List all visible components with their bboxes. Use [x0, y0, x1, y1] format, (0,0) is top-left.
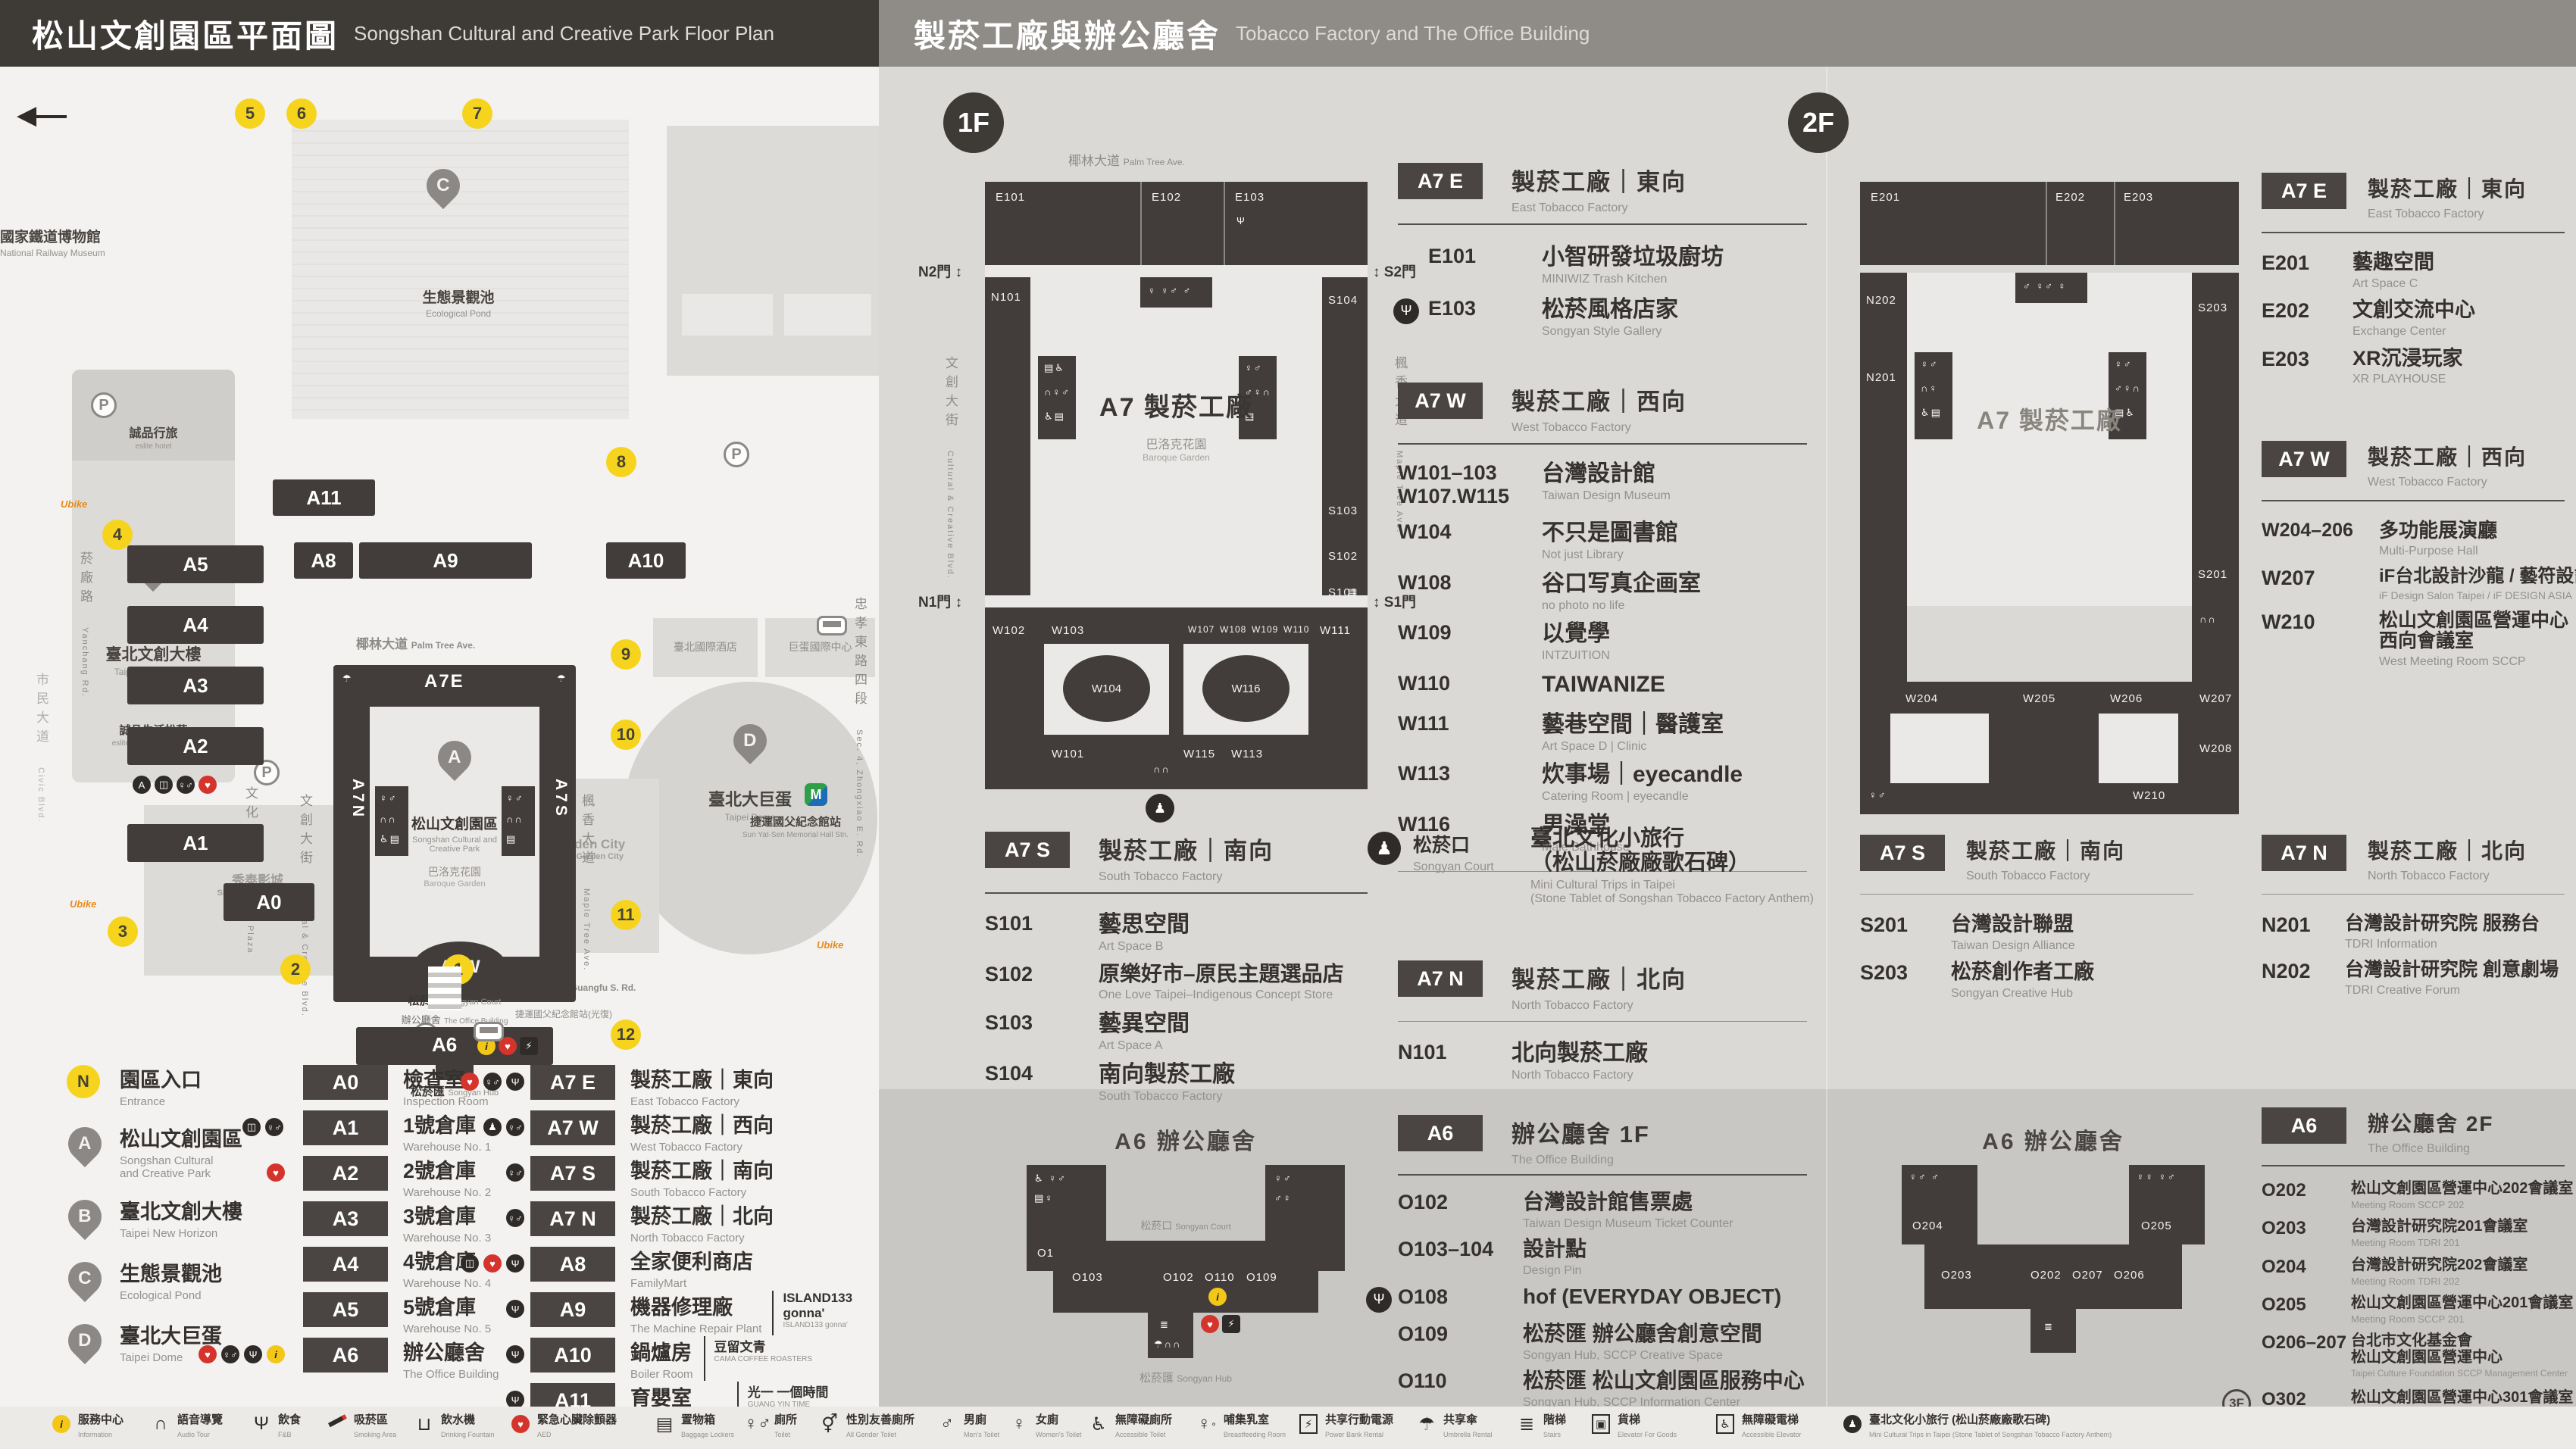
- room-name-en: Songyan Style Gallery: [1542, 325, 1678, 339]
- court-title-en: Songyan Court: [1413, 860, 1494, 874]
- list-row: W109以覺學INTZUITION: [1398, 621, 1822, 663]
- num-10: 10: [617, 725, 635, 745]
- strip-en: Breastfeeding Room: [1224, 1431, 1286, 1438]
- strip-cjk: 服務中心: [78, 1413, 123, 1426]
- legend-b-en: Taipei New Horizon: [120, 1227, 242, 1240]
- audio-icon: ∩∩: [2199, 614, 2217, 625]
- room-name: 台北市文化基金會: [2351, 1332, 2472, 1349]
- plan1-cc-blvd: 文創大街 Cultural & Creative Blvd.: [941, 356, 960, 579]
- a6-1f-badge-text: A6: [1427, 1122, 1454, 1145]
- room-name-en: Not just Library: [1542, 548, 1678, 562]
- room-code: E201: [2262, 251, 2352, 275]
- aed-icon: ♥: [267, 1163, 285, 1182]
- room-e203: E203: [2124, 191, 2153, 204]
- a6p1-hub-en: Songyan Hub: [1177, 1373, 1232, 1384]
- building-a1: A1: [127, 824, 264, 862]
- room-code: O206–207: [2262, 1332, 2351, 1354]
- room-w107: W107: [1188, 624, 1215, 635]
- room-name-en: West Meeting Room SCCP: [2379, 655, 2568, 669]
- room-name-en: TDRI Creative Forum: [2345, 984, 2559, 998]
- locker-icon: ▤: [653, 1411, 676, 1437]
- culture-icon: ♟: [1146, 794, 1174, 823]
- strip-cjk: 共享行動電源: [1325, 1413, 1393, 1426]
- list-row: W204–206多功能展演廳Multi-Purpose Hall: [2262, 520, 2576, 557]
- legend-a10-cjk: 鍋爐房: [630, 1336, 693, 1366]
- room-name: TAIWANIZE: [1542, 672, 1665, 697]
- legend-a2-code: A2: [333, 1162, 359, 1185]
- locker-icon: ▤♀: [1034, 1192, 1054, 1204]
- a10-label: A10: [628, 549, 664, 573]
- a7e-2f-title: 製菸工廠｜東向: [2368, 173, 2527, 203]
- umbrella-icon: ☂: [557, 673, 567, 685]
- a3-label: A3: [183, 674, 208, 698]
- offsite-building-block: [667, 126, 879, 376]
- building-a4: A4: [127, 606, 264, 644]
- room-name-en: Multi-Purpose Hall: [2379, 545, 2497, 558]
- new-horizon-cjk: 臺北文創大樓: [76, 642, 231, 665]
- strip-aed: ♥緊急心臟除顫器AED: [509, 1411, 617, 1441]
- bus-stop-icon: [817, 616, 847, 635]
- strip-information: i服務中心Information: [50, 1411, 123, 1441]
- aed-icon: ♥: [511, 1415, 530, 1433]
- room-code: W110: [1398, 672, 1542, 695]
- a6p1-court-en: Songyan Court: [1175, 1223, 1230, 1232]
- a7n-text: A7N: [349, 779, 367, 820]
- legend-pin-a: A: [61, 1120, 108, 1167]
- zhongxiao-cjk: 忠孝東路四段: [852, 597, 867, 710]
- legend-a7e-code: A7 E: [550, 1071, 596, 1095]
- left-header: 松山文創園區平面圖 Songshan Cultural and Creative…: [0, 0, 879, 67]
- entrance-number-2: 2: [280, 954, 311, 985]
- strip-goods-elevator: ▣貨梯Elevator For Goods: [1590, 1411, 1677, 1441]
- legend-a1-cjk: 1號倉庫: [403, 1109, 491, 1138]
- a7n-map-label: A7N: [339, 779, 367, 820]
- strip-en: Drinking Fountain: [441, 1431, 495, 1438]
- a7w-title: 製菸工廠｜西向: [1512, 383, 1687, 417]
- strip-power-bank: ⚡共享行動電源Power Bank Rental: [1297, 1411, 1393, 1441]
- room-name: 藝異空間: [1099, 1011, 1190, 1036]
- ubike-logo: Ubike: [817, 939, 843, 951]
- strip-accessible-toilet: ♿無障礙廁所Accessible Toilet: [1087, 1411, 1172, 1441]
- toilet-icon: ♂♀: [1274, 1192, 1293, 1204]
- a7w-badge: A7 W: [1398, 383, 1483, 419]
- legend-a1-text: 1號倉庫Warehouse No. 1: [403, 1109, 491, 1154]
- strip-women: ♀女廁Women's Toilet: [1008, 1411, 1081, 1441]
- divider: [1398, 1021, 1807, 1022]
- park-map: ◀ 國家鐵道博物館 National Railway Museum C 生態景觀…: [0, 67, 879, 1449]
- a2-amenity-icons: A ◫ ♀♂ ♥: [133, 776, 217, 794]
- list-row: N101北向製菸工廠North Tobacco Factory: [1398, 1041, 1822, 1082]
- room-name: 南向製菸工廠: [1099, 1062, 1235, 1087]
- legend-a9-badge: A9: [530, 1292, 615, 1327]
- list-row: E101 小智研發垃圾廚坊MINIWIZ Trash Kitchen: [1428, 245, 1822, 286]
- legend-pin-c-letter: C: [78, 1268, 91, 1289]
- strip-en: Toilet: [774, 1431, 790, 1438]
- room-o102: O102: [1163, 1271, 1194, 1284]
- legend-a7s-cjk: 製菸工廠｜南向: [630, 1154, 774, 1184]
- room-name: 小智研發垃圾廚坊: [1542, 245, 1724, 270]
- a6p2-stem: ≣: [2030, 1309, 2076, 1353]
- a5-label: A5: [183, 553, 208, 576]
- list-row: O202松山文創園區營運中心202會議室Meeting Room SCCP 20…: [2262, 1180, 2574, 1210]
- toilet-icon: ♂♀∩: [2115, 383, 2141, 394]
- wall: [1224, 182, 1225, 265]
- street-civic: 市民大道 Civic Blvd.: [32, 673, 51, 823]
- pond-label: 生態景觀池 Ecological Pond: [364, 286, 553, 319]
- legend-a4-code: A4: [333, 1253, 359, 1276]
- room-e102: E102: [1152, 191, 1181, 204]
- palm-en: Palm Tree Ave.: [411, 640, 476, 651]
- accessible-elevator-icon: ♿: [1716, 1414, 1734, 1434]
- room-e201: E201: [1871, 191, 1900, 204]
- route-a-icon: A: [133, 776, 151, 794]
- num-9: 9: [621, 645, 630, 664]
- num-2: 2: [291, 960, 300, 979]
- right-title: 製菸工廠與辦公廳舍: [914, 11, 1221, 57]
- legend-a3-text: 3號倉庫Warehouse No. 3: [403, 1200, 491, 1244]
- legend-pin-b-text: 臺北文創大樓 Taipei New Horizon: [120, 1195, 242, 1240]
- crosswalk: [428, 967, 461, 1010]
- room-code: W101–103: [1398, 461, 1497, 484]
- toilet-icon: ♀♂: [1921, 358, 1939, 370]
- offsite-building-a: [682, 294, 773, 336]
- street-yanchang: 菸廠路 Yanchang Rd.: [76, 551, 95, 698]
- legend-a9-cjk: 機器修理廠: [630, 1291, 761, 1320]
- right-subtitle: Tobacco Factory and The Office Building: [1236, 22, 1590, 45]
- legend-pin-a-letter: A: [78, 1133, 91, 1154]
- wall: [1140, 182, 1142, 265]
- room-code: W204–206: [2262, 520, 2379, 542]
- plan1-east-band: E101 E102 E103 Ψ: [985, 182, 1368, 265]
- a7s-text: A7S: [552, 779, 570, 819]
- strip-accessible-elevator: ♿無障礙電梯Accessible Elevator: [1714, 1411, 1802, 1441]
- room-s102: S102: [1328, 550, 1358, 563]
- floor-plan-2f: E201 E202 E203 N202 N201 S203 S201 ∩∩ ♂ …: [1856, 159, 2243, 826]
- culture-icon: ♟: [1368, 832, 1401, 865]
- plan1-baroque-en: Baroque Garden: [1049, 452, 1303, 463]
- room-name-en: MINIWIZ Trash Kitchen: [1542, 273, 1724, 286]
- legend-pin-c-text: 生態景觀池 Ecological Pond: [120, 1257, 222, 1302]
- room-name-en: Exchange Center: [2352, 325, 2475, 339]
- room-name-en: Catering Room | eyecandle: [1542, 790, 1743, 804]
- legend-a6-code: A6: [333, 1344, 359, 1367]
- a7n-badge: A7 N: [1398, 960, 1483, 997]
- room-e103: E103: [1235, 191, 1265, 204]
- gate-n1: N1門 ↕: [918, 591, 962, 611]
- room-w116-oval: W116: [1202, 655, 1290, 722]
- room-name: 原樂好市–原民主題選品店: [1099, 962, 1344, 985]
- room-w210: W210: [2133, 789, 2165, 802]
- a11-brand-text: 光一 一個時間: [748, 1385, 829, 1400]
- legend-a7n-badge: A7 N: [530, 1201, 615, 1236]
- toilet-icon: ♀♂: [265, 1118, 283, 1136]
- room-o205: O205: [2141, 1219, 2172, 1232]
- plan2-a7-title: A7 製菸工廠: [1924, 401, 2174, 436]
- list-row: N201台灣設計研究院 服務台TDRI Information: [2262, 913, 2574, 951]
- toilet-icon: ♀♂: [380, 792, 398, 804]
- toilet-icon: ♀♂: [2115, 358, 2133, 370]
- strip-en: Umbrella Rental: [1443, 1431, 1493, 1438]
- room-w204: W204: [1905, 692, 1938, 705]
- section-1f-a6: A6 辦公廳舍 1FThe Office Building O102台灣設計館售…: [1398, 1115, 1822, 1410]
- list-row: S201台灣設計聯盟Taiwan Design Alliance: [1860, 913, 2209, 952]
- a9-label: A9: [433, 549, 458, 573]
- palm-cjk: 椰林大道: [356, 637, 408, 651]
- strip-cjk: 置物箱: [681, 1413, 715, 1426]
- room-w207: W207: [2199, 692, 2232, 705]
- legend-a9-icons: Ψ: [506, 1300, 524, 1318]
- legend-a10-brand: 豆留文青CAMA COFFEE ROASTERS: [704, 1336, 812, 1381]
- room-name: 藝趣空間: [2352, 251, 2434, 273]
- smoking-icon: [328, 1415, 346, 1428]
- toilet-icon: ♀♀ ♀♂: [2137, 1171, 2177, 1182]
- divider: [2262, 894, 2565, 895]
- room-code: W210: [2262, 611, 2379, 634]
- room-name-en: Art Space C: [2352, 277, 2434, 291]
- mrt-cjk: 捷運國父紀念館站: [720, 814, 871, 829]
- a6-1f-title-en: The Office Building: [1512, 1154, 1650, 1167]
- legend-a7w-icons: ♟♀♂: [483, 1118, 524, 1136]
- room-code: O205: [2262, 1294, 2351, 1316]
- legend-a3-badge: A3: [303, 1201, 388, 1236]
- room-w206: W206: [2110, 692, 2143, 705]
- room-w208: W208: [2199, 742, 2232, 755]
- stairs-icon: ≣: [2044, 1321, 2054, 1333]
- building-a9: A9: [359, 542, 532, 579]
- list-row: O204台灣設計研究院202會議室Meeting Room TDRI 202: [2262, 1257, 2574, 1287]
- a6p1-court-cjk: 松菸口: [1140, 1219, 1172, 1232]
- restaurant-icon: Ψ: [1366, 1287, 1392, 1313]
- room-w116: W116: [1231, 682, 1260, 695]
- hotel-label: 臺北國際酒店: [653, 639, 758, 654]
- strip-all-gender: ⚥性別友善廁所All Gender Toilet: [818, 1411, 914, 1441]
- power-bank-icon: ⚡: [1299, 1414, 1318, 1434]
- strip-cjk: 哺集乳室: [1224, 1413, 1269, 1426]
- toilet-icon: ♂ ♀♂ ♀: [2023, 280, 2067, 292]
- list-row: O102台灣設計館售票處Taiwan Design Museum Ticket …: [1398, 1191, 1822, 1230]
- plan2-w206-court: [2099, 714, 2178, 783]
- room-s104: S104: [1328, 294, 1358, 307]
- legend-a7s-icons: ♀♂: [506, 1163, 524, 1182]
- a7w-2f-title-en: West Tobacco Factory: [2368, 476, 2527, 489]
- room-code: O103–104: [1398, 1238, 1523, 1261]
- legend-entrance: 園區入口 Entrance: [120, 1063, 202, 1108]
- room-o204: O204: [1912, 1219, 1943, 1232]
- legend-a8-code: A8: [560, 1253, 586, 1276]
- strip-fnb: Ψ飲食F&B: [250, 1411, 301, 1441]
- toilet-icon: ♀♂: [506, 1209, 524, 1227]
- a9-brand-sub: ISLAND133 gonna': [783, 1321, 879, 1329]
- hotel-block: 臺北國際酒店: [653, 618, 758, 677]
- strip-cjk: 女廁: [1036, 1413, 1058, 1426]
- plan1-south-corridor: [985, 595, 1368, 607]
- legend-a5-code: A5: [333, 1298, 359, 1322]
- offsite-building-b: [784, 294, 871, 336]
- a6-1f-title: 辦公廳舍 1F: [1512, 1115, 1650, 1149]
- list-row: S103藝異空間Art Space A: [985, 1011, 1383, 1053]
- legend-a10-badge: A10: [530, 1338, 615, 1372]
- a10-brand-sub: CAMA COFFEE ROASTERS: [714, 1355, 812, 1363]
- room-o103: O103: [1072, 1271, 1103, 1284]
- entrance-number-3: 3: [108, 917, 138, 947]
- bus-stop-label: 捷運國父紀念館站(光復): [515, 1007, 612, 1020]
- floor-2f-text: 2F: [1802, 107, 1834, 139]
- strip-cjk: 臺北文化小旅行 (松山菸廠廠歌石碑): [1869, 1413, 2050, 1426]
- legend-a0-code: A0: [333, 1071, 359, 1095]
- room-o206: O206: [2114, 1269, 2145, 1282]
- gate-n2: N2門 ↕: [918, 261, 962, 281]
- strip-cjk: 緊急心臟除顫器: [537, 1413, 617, 1426]
- umbrella-icon: ☂: [342, 673, 353, 685]
- legend-a7s-text: 製菸工廠｜南向South Tobacco Factory: [630, 1154, 774, 1199]
- legend-a10-text: 鍋爐房Boiler Room 豆留文青CAMA COFFEE ROASTERS: [630, 1336, 812, 1381]
- plan1-north-corridor: [985, 265, 1368, 277]
- legend-pin-b: B: [61, 1193, 108, 1240]
- bus-stop-cjk: 捷運國父紀念館站(光復): [515, 1009, 612, 1020]
- room-code: S102: [985, 963, 1099, 986]
- building-a8: A8: [294, 542, 353, 579]
- office-map-label: 辦公廳舍 The Office Building: [371, 1012, 538, 1027]
- legend-a7w-text: 製菸工廠｜西向West Tobacco Factory: [630, 1109, 774, 1154]
- a7s-2f-title: 製菸工廠｜南向: [1966, 835, 2125, 865]
- room-name-en: North Tobacco Factory: [1512, 1069, 1648, 1082]
- civic-en: Civic Blvd.: [36, 767, 45, 823]
- num-6: 6: [297, 104, 306, 123]
- street-cultural-plaza: 文化廣場 Cultural Plaza: [241, 786, 260, 954]
- park-cjk: 松山文創園區: [371, 813, 538, 833]
- maple-cjk: 楓香大道: [580, 794, 594, 870]
- legend-entrance-cjk: 園區入口: [120, 1063, 202, 1093]
- plan1-cc-cjk: 文創大街: [943, 356, 958, 432]
- room-name-en: Songyan Hub, SCCP Creative Space: [1523, 1349, 1762, 1363]
- restaurant-icon: Ψ: [1393, 298, 1419, 324]
- room-code: O108: [1398, 1285, 1523, 1309]
- room-name: 藝思空間: [1099, 912, 1190, 937]
- room-name-en: Art Space B: [1099, 940, 1190, 954]
- railway-museum-label: 國家鐵道博物館 National Railway Museum: [0, 226, 105, 258]
- legend-a7s-en: South Tobacco Factory: [630, 1186, 774, 1199]
- room-w111: W111: [1320, 624, 1351, 637]
- divider: [2262, 500, 2565, 501]
- entrance-number-9: 9: [611, 639, 641, 670]
- entrance-number-5: 5: [235, 98, 265, 129]
- plan1-a7-title: A7 製菸工廠: [1049, 386, 1303, 423]
- a6-2f-plan: A6 辦公廳舍 ♀♂ ♂ O204 ♀♀ ♀♂ O205 O203 O202 O…: [1871, 1112, 2235, 1400]
- list-row: N202台灣設計研究院 創意劇場TDRI Creative Forum: [2262, 960, 2574, 997]
- a1-label: A1: [183, 832, 208, 855]
- audio-icon: ∩∩: [1153, 764, 1171, 775]
- strip-cjk: 飲水機: [441, 1413, 475, 1426]
- strip-cjk: 共享傘: [1443, 1413, 1477, 1426]
- plan2-west-band: W204 W205 W206 W207 W208 W210 ♀♂: [1860, 682, 2239, 814]
- strip-en: Accessible Elevator: [1742, 1431, 1802, 1438]
- list-row: O103–104設計點Design Pin: [1398, 1238, 1822, 1277]
- room-name: 台灣設計聯盟: [1951, 913, 2074, 935]
- parking-icon: P: [724, 442, 749, 467]
- toilet-icon: ♀♂: [483, 1073, 502, 1091]
- list-row: E201藝趣空間Art Space C: [2262, 251, 2574, 290]
- restaurant-icon: Ψ: [250, 1411, 273, 1437]
- plan2-north-band: N202 N201: [1860, 273, 1907, 712]
- list-row: W108谷口写真企画室no photo no life: [1398, 571, 1822, 613]
- a9-brand-text: ISLAND133 gonna': [783, 1291, 852, 1320]
- room-code: N101: [1398, 1041, 1512, 1064]
- bus-stop-icon: [474, 1022, 504, 1041]
- a6-2f-badge: A6: [2262, 1107, 2346, 1144]
- strip-cjk: 吸菸區: [354, 1413, 388, 1426]
- room-o202: O202: [2030, 1269, 2062, 1282]
- aed-icon: ♥: [461, 1073, 479, 1091]
- goods-elevator-icon: ▣: [1592, 1414, 1610, 1434]
- room-name: 松山文創園區營運中心: [2379, 610, 2568, 631]
- a6p1-hub-label: 松菸匯 Songyan Hub: [1095, 1369, 1277, 1385]
- legend-a10-icons: Ψ: [506, 1345, 524, 1363]
- a6-1f-badge: A6: [1398, 1115, 1483, 1151]
- num-11: 11: [617, 905, 634, 925]
- room-name-en: XR PLAYHOUSE: [2352, 373, 2463, 386]
- legend-a9-code: A9: [560, 1298, 586, 1322]
- a7s-2f-badge-text: A7 S: [1880, 842, 1925, 865]
- room-name-line2: 松山文創園區營運中心: [2351, 1349, 2503, 1366]
- legend-a9-text: 機器修理廠The Machine Repair Plant ISLAND133 …: [630, 1291, 879, 1335]
- strip-cjk: 廁所: [774, 1413, 797, 1426]
- plan2-south-band: S203 S201 ∩∩: [2192, 273, 2239, 712]
- legend-a6-text: 辦公廳舍The Office Building: [403, 1336, 499, 1381]
- room-code: E103: [1428, 297, 1542, 320]
- a7e-badge: A7 E: [1398, 163, 1483, 199]
- legend-a4-en: Warehouse No. 4: [403, 1277, 491, 1290]
- room-name-line2: 西向會議室: [2379, 630, 2474, 651]
- office-cjk: 辦公廳舍: [402, 1014, 441, 1026]
- toilet-icon: ♀♂: [506, 1118, 524, 1136]
- legend-a5-badge: A5: [303, 1292, 388, 1327]
- a6p2-crossbar: O203 O202 O207 O206: [1924, 1244, 2182, 1309]
- strip-lockers: ▤置物箱Baggage Lockers: [653, 1411, 734, 1441]
- toilet-icon: ♀♂: [221, 1345, 239, 1363]
- legend-a6-badge: A6: [303, 1338, 388, 1372]
- list-row: O110松菸匯 松山文創園區服務中心Songyan Hub, SCCP Info…: [1398, 1369, 1822, 1409]
- a7e-title: 製菸工廠｜東向: [1512, 163, 1687, 197]
- room-w110: W110: [1283, 624, 1309, 635]
- a7e-title-en: East Tobacco Factory: [1512, 201, 1687, 215]
- strip-cjk: 飲食: [278, 1413, 301, 1426]
- legend-a6-en: The Office Building: [403, 1368, 499, 1381]
- strip-en: Baggage Lockers: [681, 1431, 734, 1438]
- room-w108: W108: [1220, 624, 1246, 635]
- strip-breastfeeding: ♀∘哺集乳室Breastfeeding Room: [1196, 1411, 1286, 1441]
- a6-2f-title: 辦公廳舍 2F: [2368, 1107, 2493, 1138]
- plan2-center-label: A7 製菸工廠: [1924, 401, 2174, 436]
- room-code: W104: [1398, 520, 1542, 544]
- room-name: 松菸匯 松山文創園區服務中心: [1523, 1369, 1805, 1392]
- room-name: 松山文創園區營運中心301會議室: [2351, 1389, 2573, 1406]
- plan1-center-label: A7 製菸工廠 巴洛克花園 Baroque Garden: [1049, 386, 1303, 463]
- legend-a1-en: Warehouse No. 1: [403, 1141, 491, 1154]
- legend-a2-icons: ♥: [267, 1163, 285, 1182]
- a7s-title-en: South Tobacco Factory: [1099, 870, 1274, 884]
- strip-cjk: 貨梯: [1618, 1413, 1640, 1426]
- wall: [2114, 182, 2115, 265]
- plan2-courtyard: [1907, 273, 2192, 606]
- list-row: W110TAIWANIZE: [1398, 672, 1822, 697]
- court-line2: （松山菸廠廠歌石碑）: [1530, 851, 1750, 875]
- ubike-text: Ubike: [61, 498, 87, 510]
- ubike-logo: Ubike: [61, 498, 87, 510]
- a4-label: A4: [183, 614, 208, 637]
- room-name: 谷口写真企画室: [1542, 571, 1701, 596]
- a7s-title: 製菸工廠｜南向: [1099, 832, 1274, 866]
- a7e-2f-badge: A7 E: [2262, 173, 2346, 209]
